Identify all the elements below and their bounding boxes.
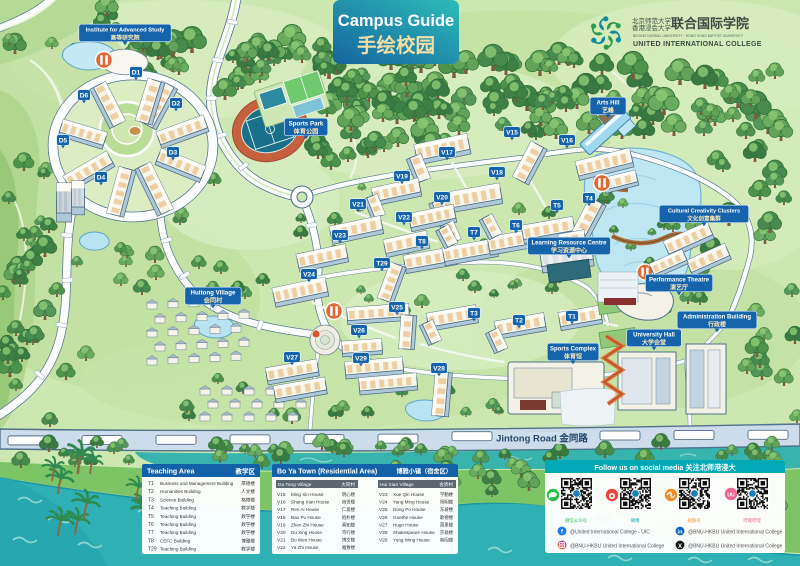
- svg-text:T7: T7: [470, 229, 478, 236]
- svg-text:V25: V25: [391, 304, 403, 311]
- svg-text:Cultural Creativity Clusters: Cultural Creativity Clusters: [668, 208, 740, 214]
- svg-text:阳明楼: 阳明楼: [440, 499, 454, 506]
- svg-text:Performance Theatre: Performance Theatre: [649, 277, 710, 283]
- svg-text:Goethe House: Goethe House: [393, 515, 423, 520]
- svg-text:CEFC Building: CEFC Building: [160, 538, 191, 543]
- svg-text:V25: V25: [379, 507, 388, 513]
- svg-text:T1: T1: [568, 313, 576, 320]
- svg-text:T5: T5: [148, 514, 154, 520]
- svg-text:手绘校园: 手绘校园: [357, 34, 435, 57]
- svg-text:Jintong Road 金同路: Jintong Road 金同路: [496, 433, 588, 445]
- svg-text:D6: D6: [80, 92, 89, 99]
- svg-text:教学楼: 教学楼: [241, 546, 255, 553]
- svg-text:体育馆: 体育馆: [564, 352, 582, 360]
- svg-text:V22: V22: [277, 545, 286, 551]
- svg-text:T2: T2: [148, 489, 154, 495]
- svg-text:T6: T6: [148, 522, 154, 528]
- svg-text:教学楼: 教学楼: [241, 505, 255, 512]
- svg-text:Sports Park: Sports Park: [289, 120, 324, 127]
- svg-text:V20: V20: [277, 530, 286, 536]
- svg-text:V22: V22: [398, 214, 410, 221]
- svg-text:@United International College: @United International College - UIC: [570, 530, 650, 536]
- svg-text:Science Building: Science Building: [160, 497, 194, 502]
- svg-text:T29: T29: [376, 260, 388, 267]
- svg-text:V16: V16: [277, 500, 286, 506]
- svg-text:Business and Management Buildi: Business and Management Building: [160, 481, 234, 486]
- svg-text:V29: V29: [355, 355, 367, 362]
- svg-text:Shakespeare House: Shakespeare House: [393, 530, 435, 535]
- svg-text:University Hall: University Hall: [633, 332, 675, 338]
- svg-text:T3: T3: [470, 310, 478, 317]
- svg-text:Teaching Building: Teaching Building: [160, 522, 196, 527]
- svg-text:联合国际学院: 联合国际学院: [671, 16, 749, 31]
- svg-text:Learning Resource Centre: Learning Resource Centre: [531, 240, 607, 246]
- svg-text:仁爱楼: 仁爱楼: [342, 506, 356, 513]
- svg-text:Bo Ya Town (Residential Area): Bo Ya Town (Residential Area): [277, 469, 377, 476]
- svg-text:T3: T3: [148, 497, 154, 503]
- svg-text:莎翁楼: 莎翁楼: [440, 529, 454, 536]
- svg-text:容闳楼: 容闳楼: [440, 537, 454, 544]
- svg-text:视频号: 视频号: [687, 517, 701, 524]
- svg-text:@BNU-HKBU United International: @BNU-HKBU United International College: [570, 544, 665, 550]
- svg-text:Xue Qin House: Xue Qin House: [393, 492, 425, 497]
- svg-text:Du Xing House: Du Xing House: [291, 530, 322, 535]
- svg-text:Teaching Building: Teaching Building: [160, 506, 196, 511]
- svg-text:V15: V15: [506, 129, 518, 136]
- svg-text:明心楼: 明心楼: [342, 491, 356, 498]
- svg-text:T1: T1: [148, 481, 154, 487]
- svg-text:体育公园: 体育公园: [294, 127, 319, 135]
- svg-text:抱朴楼: 抱朴楼: [342, 514, 356, 521]
- svg-text:教学区: 教学区: [235, 467, 256, 476]
- svg-text:Institute for Advanced Study: Institute for Advanced Study: [86, 27, 165, 33]
- svg-text:T8: T8: [418, 238, 426, 245]
- svg-text:笃行楼: 笃行楼: [342, 529, 356, 536]
- svg-text:雨果楼: 雨果楼: [440, 521, 454, 528]
- svg-text:微博: 微博: [631, 517, 640, 524]
- svg-text:V28: V28: [433, 365, 445, 372]
- svg-text:V19: V19: [277, 522, 286, 528]
- svg-text:Ren Ai House: Ren Ai House: [291, 507, 320, 512]
- svg-text:V26: V26: [353, 327, 365, 334]
- svg-text:Humanities Building: Humanities Building: [160, 489, 201, 494]
- svg-text:Da Tong Village: Da Tong Village: [278, 482, 312, 488]
- svg-text:哔哩哔哩: 哔哩哔哩: [743, 517, 761, 524]
- svg-text:大同村: 大同村: [341, 481, 355, 488]
- svg-text:艺峰: 艺峰: [602, 106, 615, 114]
- svg-text:Teaching Building: Teaching Building: [160, 547, 196, 552]
- svg-text:Follow us on social media 关注: Follow us on social media 关注北师港浸大: [594, 463, 736, 472]
- svg-text:东坡楼: 东坡楼: [440, 506, 454, 513]
- svg-text:Dong Po House: Dong Po House: [393, 507, 426, 512]
- svg-text:北京师范大学: 北京师范大学: [632, 16, 672, 25]
- svg-text:Shang Xian House: Shang Xian House: [291, 500, 330, 505]
- svg-text:D5: D5: [59, 137, 68, 144]
- svg-text:会贤村: 会贤村: [439, 481, 453, 488]
- svg-text:V27: V27: [379, 522, 388, 528]
- svg-text:V29: V29: [379, 538, 388, 544]
- svg-text:高等研究院: 高等研究院: [111, 33, 140, 41]
- svg-text:Yung Wing House: Yung Wing House: [393, 538, 430, 543]
- svg-text:D3: D3: [169, 149, 178, 156]
- svg-text:V23: V23: [334, 232, 346, 239]
- svg-text:微信公众号: 微信公众号: [565, 517, 588, 524]
- svg-text:Sports Complex: Sports Complex: [550, 346, 597, 352]
- svg-text:V17: V17: [441, 149, 453, 156]
- svg-text:学勤楼: 学勤楼: [440, 491, 454, 498]
- svg-text:T6: T6: [512, 222, 520, 229]
- svg-text:V21: V21: [352, 201, 364, 208]
- svg-text:V21: V21: [277, 538, 286, 544]
- svg-text:Ya Zhi House: Ya Zhi House: [291, 545, 319, 550]
- svg-text:Teaching Building: Teaching Building: [160, 514, 196, 519]
- svg-text:教学楼: 教学楼: [241, 513, 255, 520]
- svg-text:真知楼: 真知楼: [342, 521, 356, 528]
- svg-text:X: X: [678, 544, 682, 550]
- svg-text:V23: V23: [379, 492, 388, 498]
- svg-text:尚贤楼: 尚贤楼: [342, 499, 356, 506]
- svg-text:Yang Ming House: Yang Ming House: [393, 500, 430, 505]
- svg-text:Huitong Village: Huitong Village: [191, 289, 236, 296]
- svg-text:香港浸会大学: 香港浸会大学: [632, 23, 672, 32]
- svg-text:歌德楼: 歌德楼: [440, 514, 454, 521]
- svg-text:V20: V20: [436, 194, 448, 201]
- svg-text:博文楼: 博文楼: [342, 537, 356, 544]
- svg-text:Campus Guide: Campus Guide: [338, 12, 454, 30]
- svg-text:演艺厅: 演艺厅: [670, 283, 688, 291]
- svg-text:大学会堂: 大学会堂: [642, 338, 666, 346]
- svg-text:T4: T4: [585, 195, 593, 202]
- svg-text:T2: T2: [515, 317, 523, 324]
- svg-text:Administration Building: Administration Building: [683, 314, 751, 320]
- svg-text:UNITED INTERNATIONAL COLLEGE: UNITED INTERNATIONAL COLLEGE: [633, 41, 762, 48]
- svg-text:Teaching Area: Teaching Area: [147, 469, 195, 476]
- svg-text:行政楼: 行政楼: [707, 320, 726, 328]
- svg-text:T8: T8: [148, 538, 154, 544]
- svg-text:会同村: 会同村: [204, 296, 223, 304]
- svg-text:@BNU-HKBU United International: @BNU-HKBU United International College: [688, 530, 783, 536]
- svg-text:格物楼: 格物楼: [241, 496, 255, 503]
- svg-text:@BNU-HKBU United International: @BNU-HKBU United International College: [688, 544, 783, 550]
- svg-text:Hugo House: Hugo House: [393, 522, 419, 527]
- svg-text:Hui Xian Village: Hui Xian Village: [380, 482, 414, 488]
- svg-text:文化创意集群: 文化创意集群: [687, 214, 721, 222]
- svg-text:Bo Wen House: Bo Wen House: [291, 538, 322, 543]
- svg-text:V17: V17: [277, 507, 286, 513]
- svg-text:V19: V19: [396, 173, 408, 180]
- svg-text:T4: T4: [148, 506, 154, 512]
- svg-text:Arts Hill: Arts Hill: [596, 100, 619, 106]
- svg-text:V16: V16: [561, 137, 573, 144]
- svg-text:V18: V18: [277, 515, 286, 521]
- svg-text:V15: V15: [277, 492, 286, 498]
- svg-text:T7: T7: [148, 530, 154, 536]
- svg-text:V28: V28: [379, 530, 388, 536]
- svg-text:学习资源中心: 学习资源中心: [551, 246, 587, 254]
- svg-text:T29: T29: [148, 547, 157, 553]
- svg-text:教学楼: 教学楼: [241, 529, 255, 536]
- svg-text:人文楼: 人文楼: [241, 488, 255, 495]
- svg-text:D2: D2: [172, 100, 181, 107]
- svg-text:厚德楼: 厚德楼: [241, 480, 255, 487]
- svg-text:雅致楼: 雅致楼: [342, 544, 356, 551]
- svg-text:V24: V24: [303, 271, 315, 278]
- svg-text:V27: V27: [286, 354, 298, 361]
- svg-text:UU: UU: [727, 493, 735, 499]
- svg-text:Zhen Zhi House: Zhen Zhi House: [291, 522, 324, 527]
- svg-text:V26: V26: [379, 515, 388, 521]
- svg-text:博雅小镇（宿舍区）: 博雅小镇（宿舍区）: [396, 468, 452, 476]
- svg-text:BEIJING NORMAL UNIVERSITY · HO: BEIJING NORMAL UNIVERSITY · HONG KONG BA…: [633, 34, 744, 38]
- svg-text:T5: T5: [553, 202, 561, 209]
- svg-text:Bao Pu House: Bao Pu House: [291, 515, 321, 520]
- svg-text:V24: V24: [379, 500, 388, 506]
- svg-text:Teaching Building: Teaching Building: [160, 530, 196, 535]
- svg-text:D1: D1: [132, 69, 141, 76]
- svg-text:博雅楼: 博雅楼: [241, 537, 255, 544]
- svg-text:D4: D4: [97, 174, 106, 181]
- svg-text:in: in: [678, 530, 684, 536]
- svg-text:V18: V18: [491, 169, 503, 176]
- svg-text:Ming Xin House: Ming Xin House: [291, 492, 324, 497]
- svg-text:教学楼: 教学楼: [241, 521, 255, 528]
